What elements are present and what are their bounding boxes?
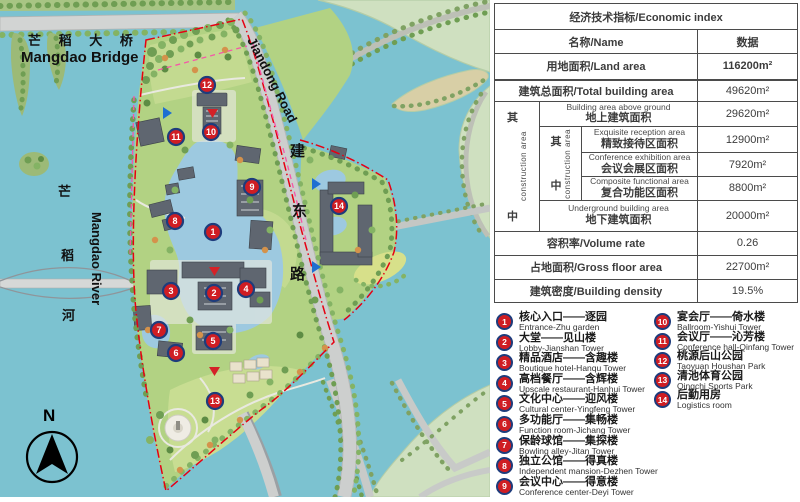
row-total-building-value: 49620m² (698, 80, 798, 102)
map-marker-2[interactable]: 2 (206, 285, 222, 301)
map-marker-8[interactable]: 8 (167, 213, 183, 229)
row-composite-value: 8800m² (698, 177, 798, 201)
road-char-1: 建 (290, 142, 306, 160)
legend-badge-3: 3 (496, 354, 513, 371)
svg-text:N: N (43, 406, 55, 425)
river-char-1: 芒 (58, 184, 71, 199)
svg-text:13: 13 (210, 396, 220, 406)
map-marker-12[interactable]: 12 (199, 77, 215, 93)
legend-item-12: 12桃源后山公园Taoyuan Houshan Park (654, 351, 796, 371)
table-title: 经济技术指标/Economic index (495, 4, 798, 30)
legend-item-10: 10宴会厅——倚水楼Ballroom-Yishui Tower (654, 312, 796, 332)
among-inner-cell: 其中 construction area (540, 127, 582, 201)
row-volume-rate-label: 容积率/Volume rate (495, 231, 698, 255)
row-volume-rate-value: 0.26 (698, 231, 798, 255)
river-label-en: Mangdao River (89, 212, 104, 305)
legend-badge-5: 5 (496, 395, 513, 412)
legend-badge-2: 2 (496, 334, 513, 351)
legend-item-5: 5文化中心——迎风楼Cultural center-Yingfeng Tower (496, 394, 654, 415)
legend-badge-14: 14 (654, 391, 671, 408)
legend-item-4: 4高档餐厅——含辉楼Upscale restaurant-Hanhui Towe… (496, 374, 654, 395)
legend-item-6: 6多功能厅——集畅楼Function room-Jichang Tower (496, 415, 654, 436)
row-land-area-value: 116200m² (698, 54, 798, 80)
legend-item-7: 7保龄球馆——集探楼Bowling alley-Jitan Tower (496, 436, 654, 457)
map-marker-14[interactable]: 14 (331, 198, 347, 214)
svg-text:6: 6 (173, 348, 178, 358)
col-header-data: 数据 (698, 30, 798, 54)
legend-item-1: 1核心入口——逐园Entrance-Zhu garden (496, 312, 654, 333)
river-char-3: 河 (62, 308, 75, 323)
svg-text:10: 10 (206, 127, 216, 137)
row-underground-value: 20000m² (698, 200, 798, 231)
svg-text:4: 4 (243, 284, 248, 294)
svg-text:1: 1 (210, 227, 215, 237)
legend-column-2: 10宴会厅——倚水楼Ballroom-Yishui Tower 11会议厅——沁… (654, 312, 796, 497)
row-reception-value: 12900m² (698, 127, 798, 153)
map-marker-1[interactable]: 1 (205, 224, 221, 240)
map-marker-9[interactable]: 9 (244, 179, 260, 195)
among-outer-cell: 其中 construction area (495, 102, 540, 232)
legend-badge-6: 6 (496, 416, 513, 433)
row-gross-floor-label: 占地面积/Gross floor area (495, 255, 698, 279)
map-marker-11[interactable]: 11 (168, 129, 184, 145)
map-marker-10[interactable]: 10 (203, 124, 219, 140)
bridge-label-zh: 芒 稻 大 桥 (28, 33, 140, 48)
map-marker-7[interactable]: 7 (151, 322, 167, 338)
svg-text:2: 2 (211, 288, 216, 298)
row-density-value: 19.5% (698, 279, 798, 302)
row-underground-label: Underground building area地下建筑面积 (540, 200, 698, 231)
legend-badge-11: 11 (654, 333, 671, 350)
map-legend: 1核心入口——逐园Entrance-Zhu garden 2大堂——见山楼Lob… (496, 312, 796, 497)
legend-badge-10: 10 (654, 313, 671, 330)
legend-item-14: 14后勤用房Logistics room (654, 390, 796, 410)
legend-item-9: 9会议中心——得意楼Conference center-Deyi Tower (496, 477, 654, 498)
svg-text:3: 3 (168, 286, 173, 296)
row-exhibition-value: 7920m² (698, 153, 798, 177)
map-marker-4[interactable]: 4 (238, 281, 254, 297)
road-char-3: 路 (290, 265, 306, 283)
monument-plaza (165, 415, 191, 441)
row-exhibition-label: Conference exhibition area会议会展区面积 (582, 153, 698, 177)
legend-badge-7: 7 (496, 437, 513, 454)
legend-item-13: 13清池体育公园Qingchi Sports Park (654, 371, 796, 391)
svg-text:8: 8 (172, 216, 177, 226)
row-gross-floor-value: 22700m² (698, 255, 798, 279)
row-above-ground-label: Building area above ground地上建筑面积 (540, 102, 698, 127)
road-char-2: 东 (292, 202, 307, 220)
row-composite-label: Composite functional area复合功能区面积 (582, 177, 698, 201)
legend-badge-4: 4 (496, 375, 513, 392)
row-total-building-label: 建筑总面积/Total building area (495, 80, 698, 102)
legend-item-2: 2大堂——见山楼Lobby-Jianshan Tower (496, 333, 654, 354)
legend-item-8: 8独立公馆——得真楼Independent mansion-Dezhen Tow… (496, 456, 654, 477)
map-marker-13[interactable]: 13 (207, 393, 223, 409)
row-land-area-label: 用地面积/Land area (495, 54, 698, 80)
legend-badge-8: 8 (496, 457, 513, 474)
svg-text:7: 7 (156, 325, 161, 335)
svg-text:12: 12 (202, 80, 212, 90)
col-header-name: 名称/Name (495, 30, 698, 54)
info-panel: 经济技术指标/Economic index 名称/Name 数据 用地面积/La… (490, 0, 800, 497)
map-marker-6[interactable]: 6 (168, 345, 184, 361)
river-char-2: 稻 (61, 248, 74, 263)
row-density-label: 建筑密度/Building density (495, 279, 698, 302)
legend-column-1: 1核心入口——逐园Entrance-Zhu garden 2大堂——见山楼Lob… (496, 312, 654, 497)
legend-badge-1: 1 (496, 313, 513, 330)
bridge-label-en: Mangdao Bridge (21, 49, 139, 66)
legend-badge-12: 12 (654, 352, 671, 369)
legend-item-3: 3精品酒店——含趣楼Boutique hotel-Hanqu Tower (496, 353, 654, 374)
legend-item-11: 11会议厅——沁芳楼Conference hall-Qinfang Tower (654, 332, 796, 352)
svg-text:11: 11 (171, 132, 181, 142)
legend-badge-13: 13 (654, 372, 671, 389)
economic-index-table: 经济技术指标/Economic index 名称/Name 数据 用地面积/La… (494, 3, 798, 303)
site-plan-map: 芒 稻 大 桥 Mangdao Bridge 芒 稻 河 Mangdao Riv… (0, 0, 490, 497)
legend-badge-9: 9 (496, 478, 513, 495)
svg-text:5: 5 (210, 336, 215, 346)
svg-text:14: 14 (334, 201, 344, 211)
svg-text:9: 9 (249, 182, 254, 192)
row-above-ground-value: 29620m² (698, 102, 798, 127)
row-reception-label: Exquisite reception area精致接待区面积 (582, 127, 698, 153)
map-marker-3[interactable]: 3 (163, 283, 179, 299)
map-marker-5[interactable]: 5 (205, 333, 221, 349)
